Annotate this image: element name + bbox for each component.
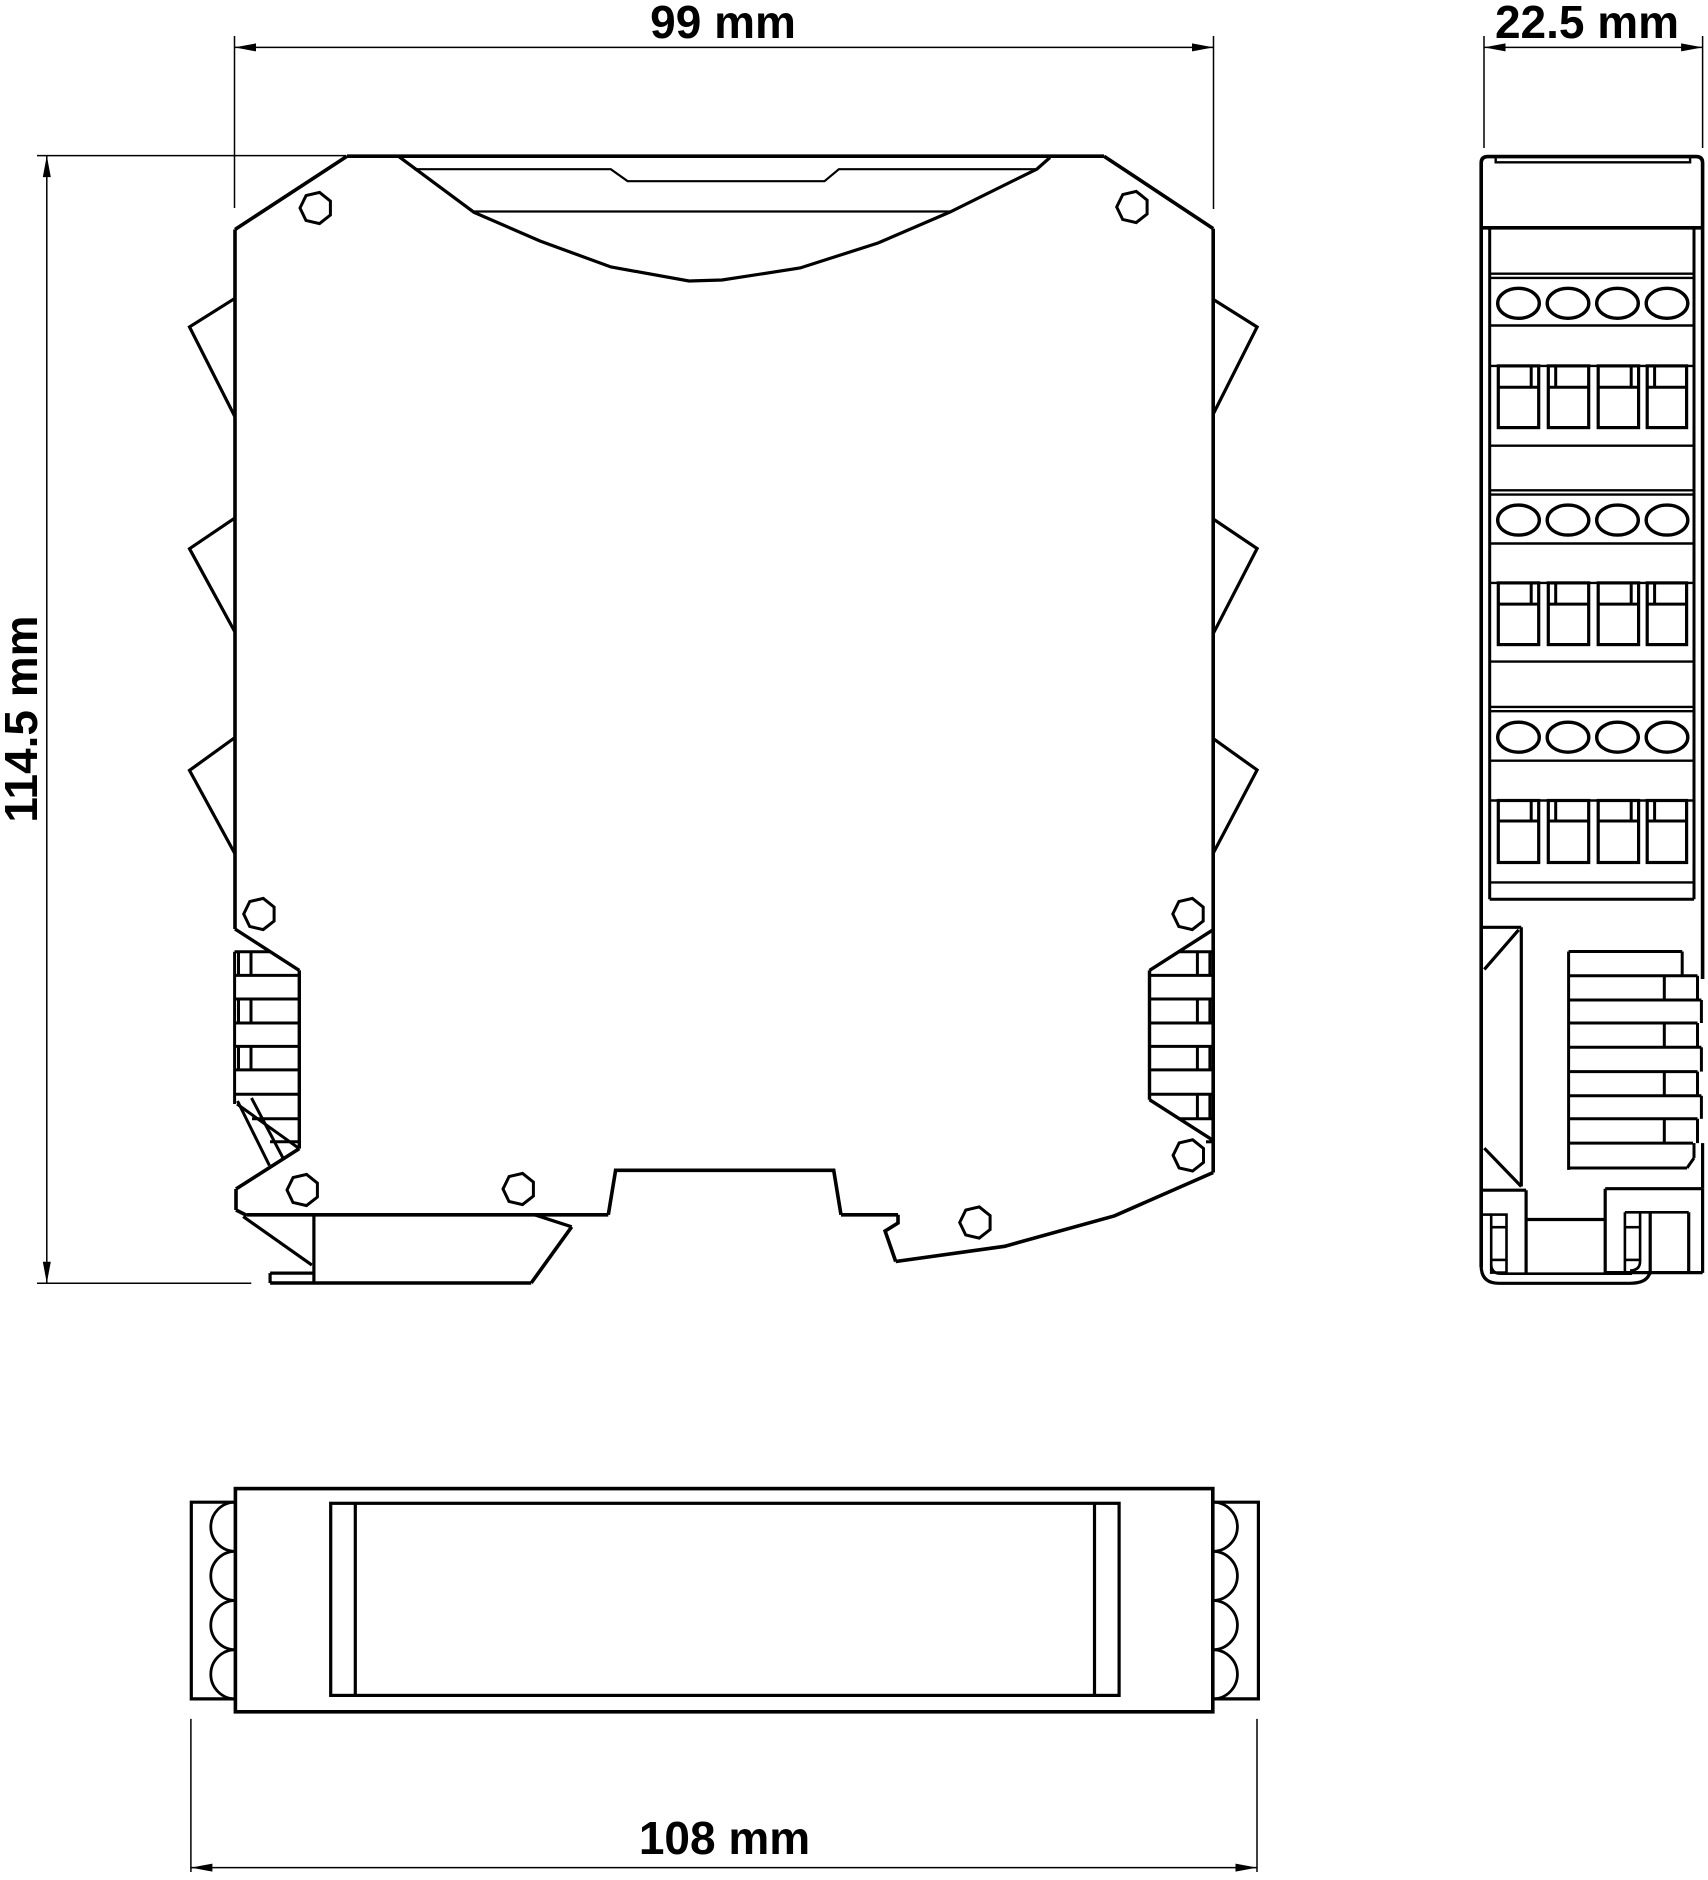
svg-text:99 mm: 99 mm — [650, 0, 796, 48]
svg-text:22.5 mm: 22.5 mm — [1495, 0, 1679, 48]
svg-text:108 mm: 108 mm — [639, 1812, 810, 1864]
svg-text:114.5 mm: 114.5 mm — [0, 615, 47, 822]
